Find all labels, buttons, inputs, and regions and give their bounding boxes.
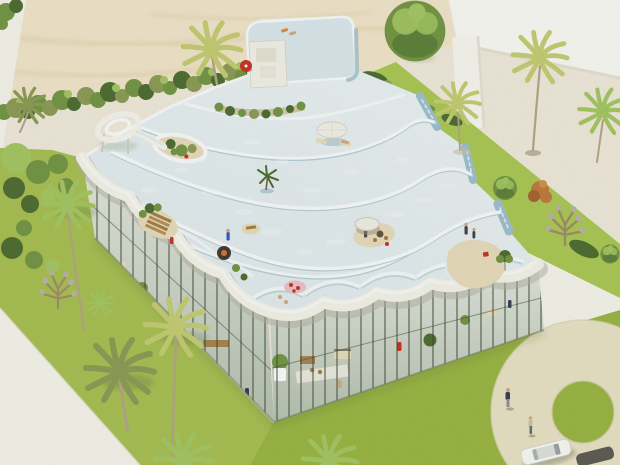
photo-grain bbox=[0, 0, 620, 465]
architectural-rendering: Aerial 3D architectural rendering: a gla… bbox=[0, 0, 620, 465]
rendering-canvas bbox=[0, 0, 620, 465]
